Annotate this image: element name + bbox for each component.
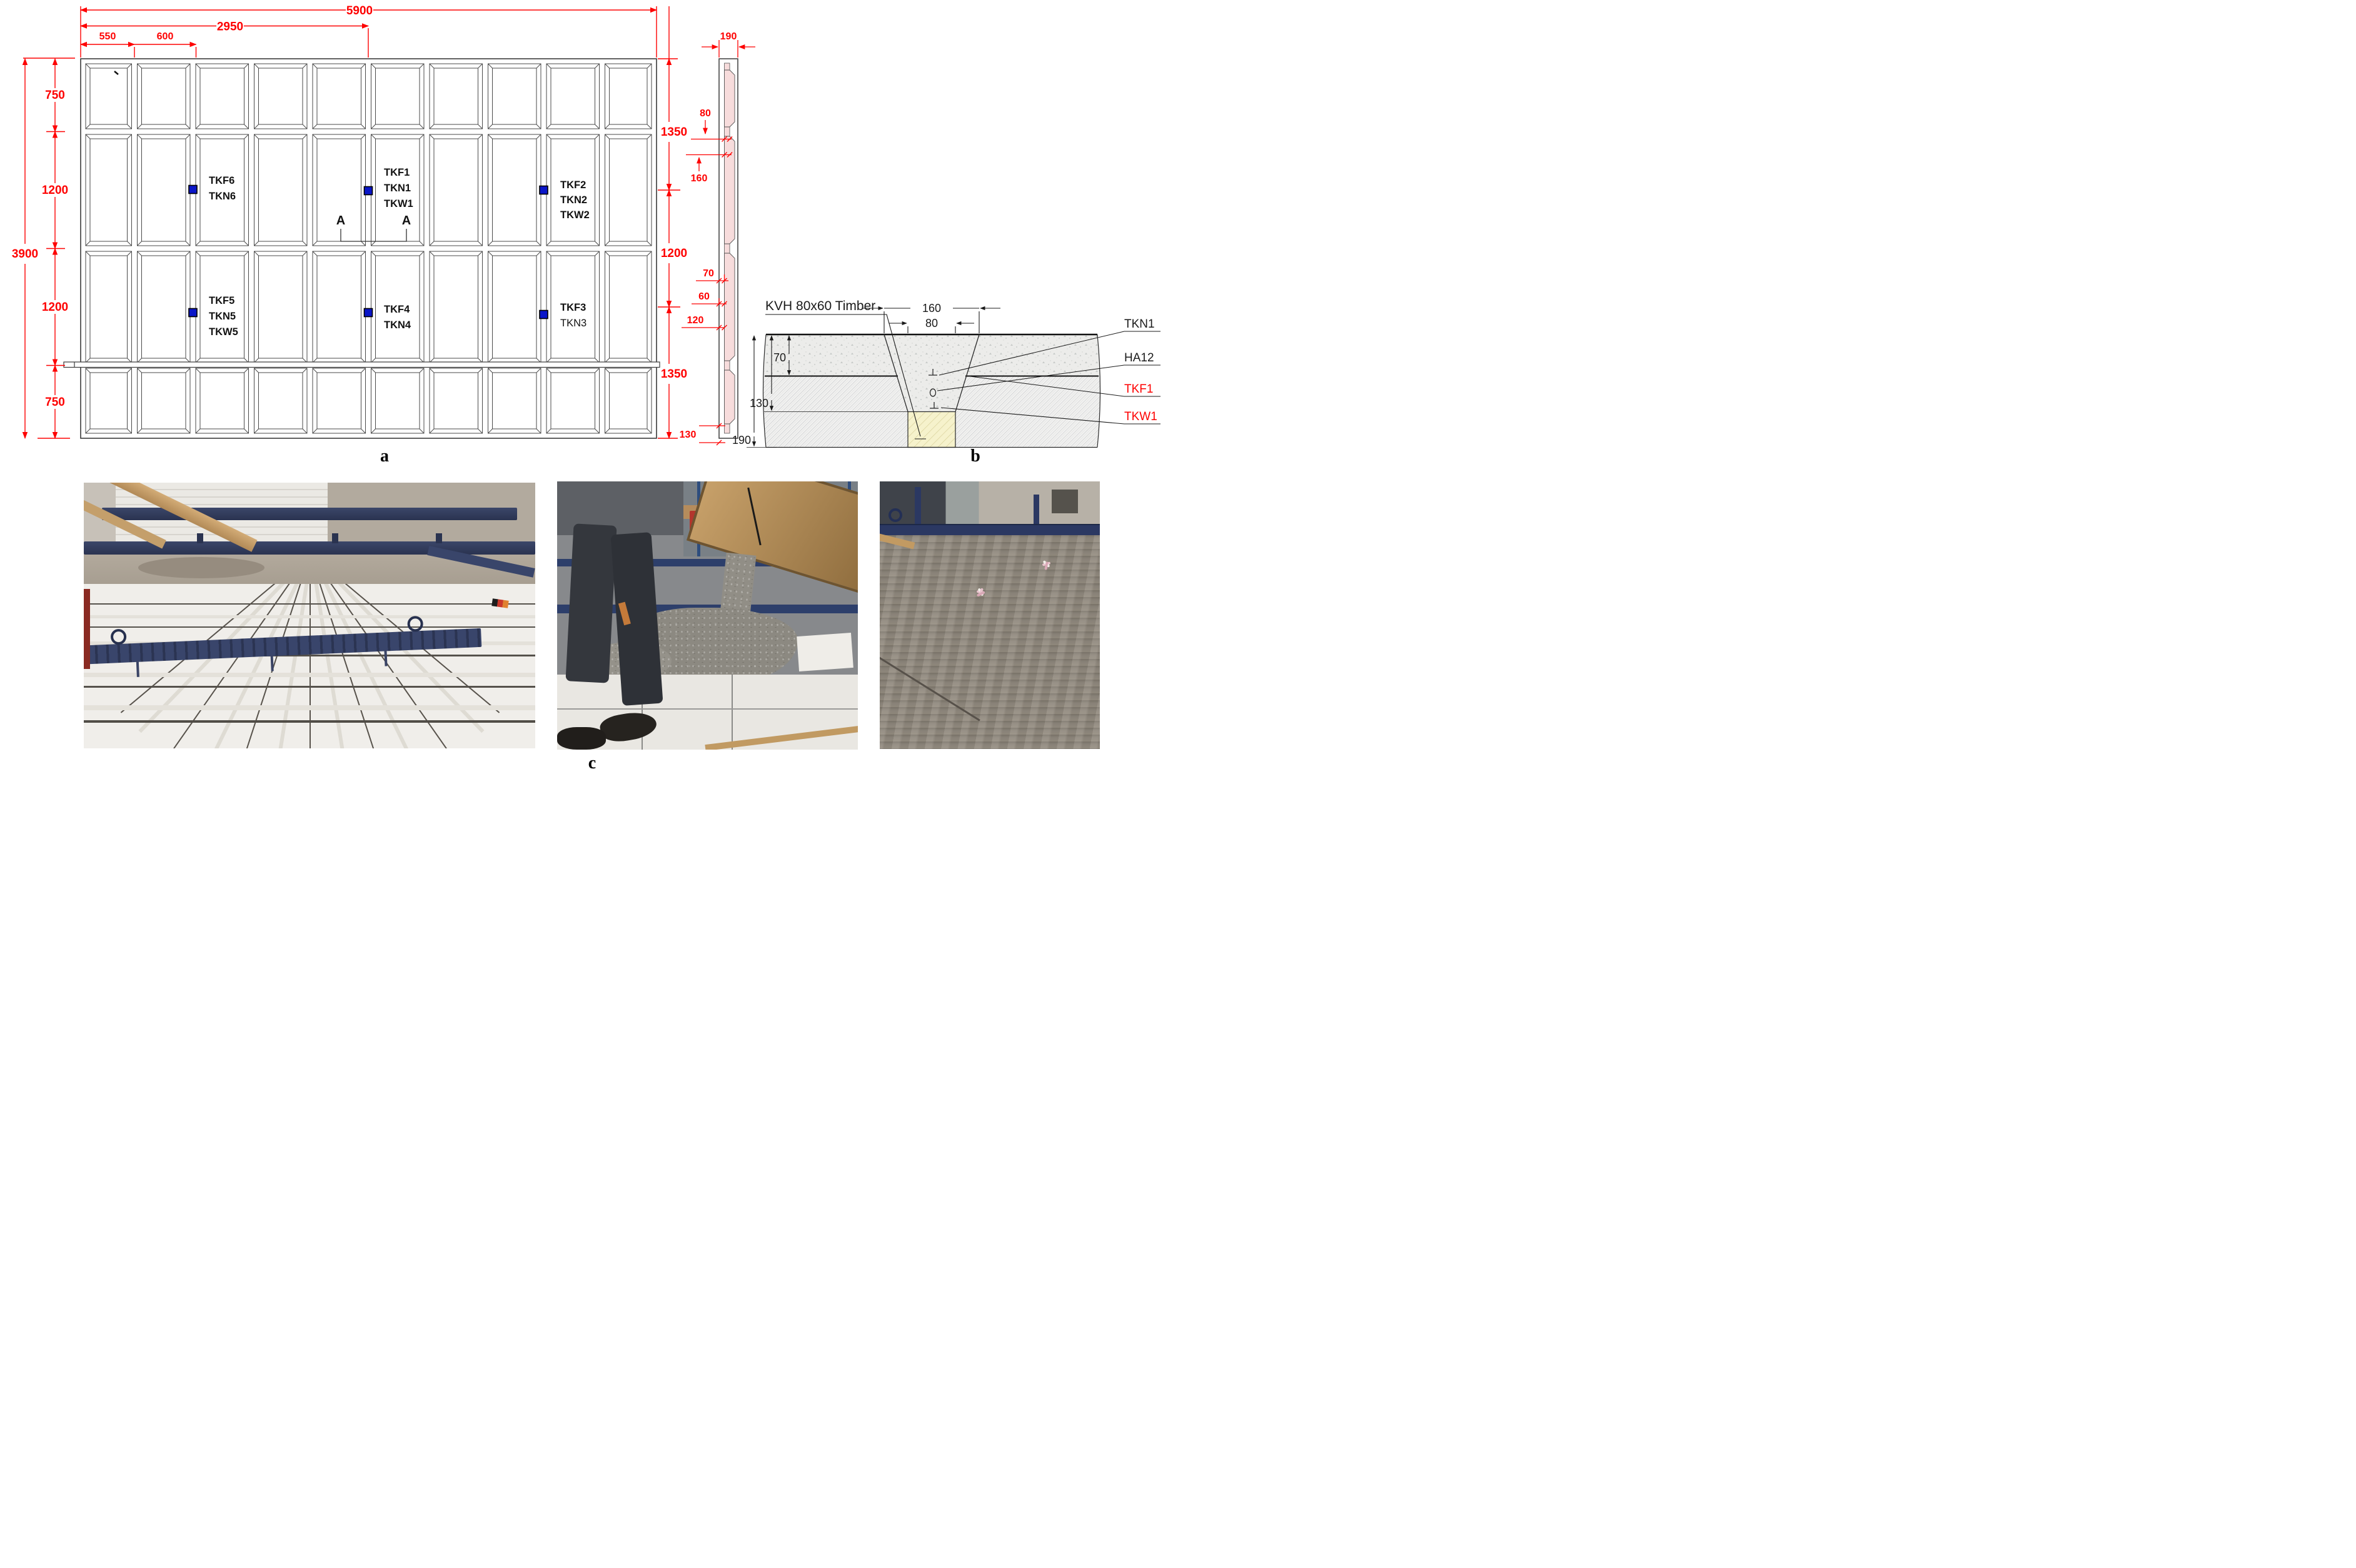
technical-diagram-svg: TKF1 TKN1 TKW1 TKF2 TKN2 TKW2 TKF3 TKN3 …: [0, 0, 1178, 480]
dim-left-750a: 750: [45, 89, 65, 102]
sensor-square-6: [189, 186, 197, 194]
label-tkf1: TKF1: [384, 167, 410, 178]
eps-deck: [84, 584, 535, 749]
beam-clamp: [332, 533, 338, 543]
label-kvh-timber: KVH 80x60 Timber: [765, 299, 875, 313]
timber-chute: [687, 481, 858, 595]
panel-joint: [732, 675, 733, 750]
panel-bevel-band: [84, 615, 535, 618]
panel-bevel-band: [84, 705, 535, 710]
dim-right-1350a: 1350: [661, 126, 687, 139]
lifting-eye-ring: [407, 616, 423, 632]
floor-stain: [138, 557, 264, 578]
dim-70-side: 70: [703, 268, 714, 279]
dim-3900: 3900: [12, 248, 38, 261]
dim-left-750b: 750: [45, 396, 65, 409]
edge-timber-bar: [64, 362, 660, 368]
dim-160-side: 160: [691, 173, 708, 184]
dim-130-bottom: 130: [680, 430, 697, 440]
dim-190-detail: 190: [732, 434, 751, 446]
timber-batten: [705, 725, 858, 750]
dim-80-detail: 80: [925, 317, 938, 329]
label-tkn5: TKN5: [209, 311, 236, 322]
label-tkw5: TKW5: [209, 326, 238, 338]
callout-ha12: HA12: [1124, 351, 1154, 364]
dim-130-detail: 130: [750, 397, 768, 410]
dim-60-side: 60: [698, 291, 710, 302]
beam-post: [1034, 495, 1039, 526]
section-letter-left: A: [336, 214, 345, 228]
dim-right-1200: 1200: [661, 247, 687, 260]
sensor-square-4: [365, 309, 373, 317]
label-tkf2: TKF2: [560, 179, 586, 191]
rebar-transverse: [84, 603, 535, 605]
label-tkn4: TKN4: [384, 319, 411, 331]
boot: [557, 727, 606, 750]
dim-right-1350b: 1350: [661, 368, 687, 381]
label-tkf5: TKF5: [209, 295, 234, 306]
sensor-square-2: [540, 186, 548, 194]
photo-fresh-surface: [880, 481, 1100, 749]
dim-left-1200b: 1200: [42, 301, 68, 314]
dim-550: 550: [99, 31, 116, 42]
dim-600: 600: [157, 31, 174, 42]
screw-rod: [270, 655, 273, 671]
caption-c: c: [567, 753, 617, 773]
label-tkn3: TKN3: [560, 318, 586, 329]
figure-page: TKF1 TKN1 TKW1 TKF2 TKN2 TKW2 TKF3 TKN3 …: [0, 0, 1178, 784]
dim-160-detail: 160: [922, 302, 941, 314]
eps-block: [797, 633, 853, 671]
lifting-eye-ring: [889, 508, 902, 522]
screw-rod: [136, 660, 139, 676]
label-tkf3: TKF3: [560, 302, 586, 313]
dim-70-detail: 70: [773, 351, 786, 364]
rebar-transverse: [84, 720, 535, 723]
rebar-longitudinal: [168, 584, 310, 749]
callout-tkw1: TKW1: [1124, 410, 1157, 423]
screw-rod: [384, 650, 387, 666]
caption-a: a: [360, 446, 410, 466]
photo-formwork: [84, 483, 535, 748]
section-letter-right: A: [402, 214, 411, 228]
callout-tkf1: TKF1: [1124, 383, 1153, 396]
rebar-transverse: [84, 686, 535, 688]
sensor-square-3: [540, 311, 548, 319]
label-tkf6: TKF6: [209, 175, 234, 186]
fresh-concrete: [880, 535, 1100, 749]
label-tkn6: TKN6: [209, 191, 236, 202]
rebar-transverse: [84, 626, 535, 628]
boot: [598, 709, 658, 745]
dim-80-side: 80: [700, 108, 711, 119]
background-box: [1052, 490, 1078, 514]
formwork-edge-red: [84, 589, 90, 669]
label-tkn2: TKN2: [560, 194, 587, 206]
detail-b: 160 80 70 130 190 KVH 80x60 Timber TKN1 …: [732, 299, 1160, 448]
beam-post: [915, 487, 921, 527]
label-tkn1: TKN1: [384, 183, 411, 194]
side-small-dimensions: [682, 40, 755, 445]
beam-clamp: [197, 533, 203, 543]
label-tkw2: TKW2: [560, 209, 590, 221]
caption-b: b: [950, 446, 1000, 466]
label-tkf4: TKF4: [384, 304, 410, 315]
beam-clamp: [436, 533, 442, 543]
dim-5900: 5900: [346, 4, 373, 18]
sensor-square-1: [365, 187, 373, 195]
panel-bevel-band: [84, 673, 535, 677]
photo-pouring: [557, 481, 858, 750]
worker-legs: [557, 525, 660, 750]
callout-tkn1: TKN1: [1124, 318, 1155, 331]
trouser-leg: [610, 532, 663, 706]
panel-outline: [81, 59, 657, 438]
dim-190-side: 190: [720, 31, 737, 42]
sensor-square-5: [189, 309, 197, 317]
trouser-leg: [565, 523, 617, 683]
rebar-longitudinal: [310, 584, 311, 749]
dim-2950: 2950: [217, 21, 243, 34]
dim-left-1200a: 1200: [42, 184, 68, 197]
dim-120-side: 120: [687, 315, 704, 326]
label-tkw1: TKW1: [384, 198, 413, 209]
trowel-streaks: [880, 535, 1100, 749]
